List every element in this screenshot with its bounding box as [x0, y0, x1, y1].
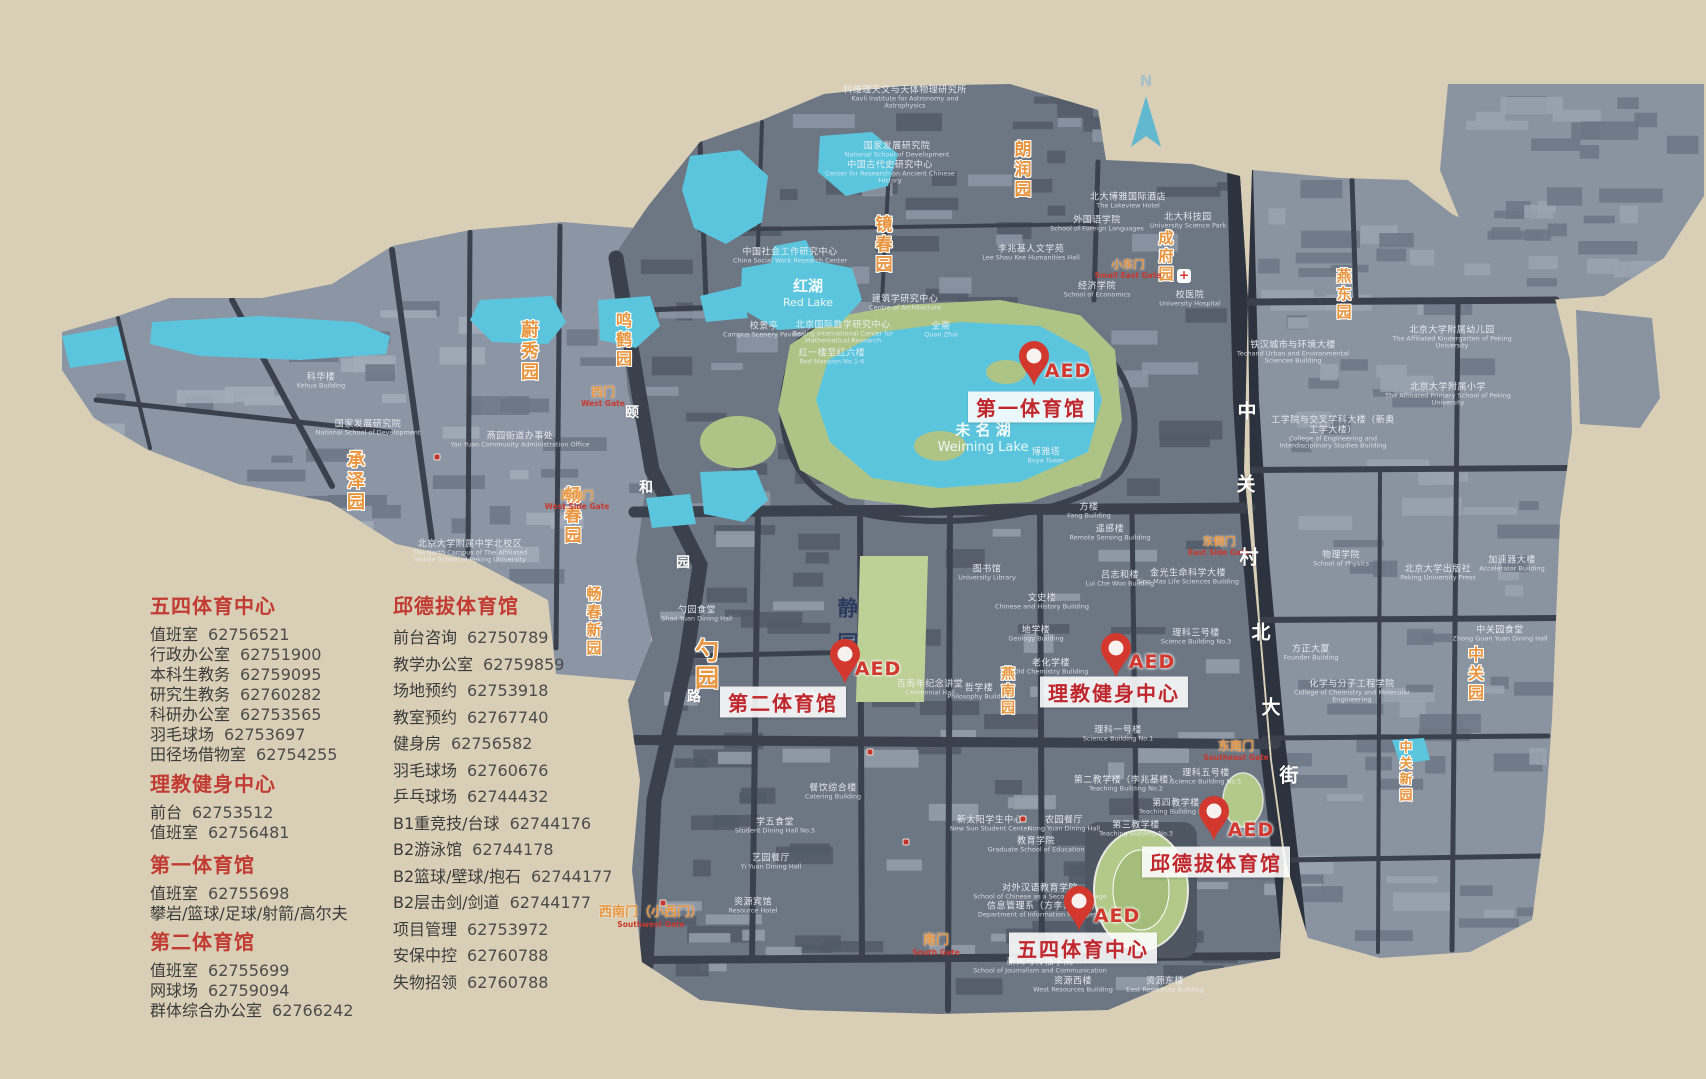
north-arrow-icon: [1131, 96, 1161, 147]
north-label: N: [1140, 72, 1153, 90]
campus-map-artwork: [0, 0, 1706, 1079]
